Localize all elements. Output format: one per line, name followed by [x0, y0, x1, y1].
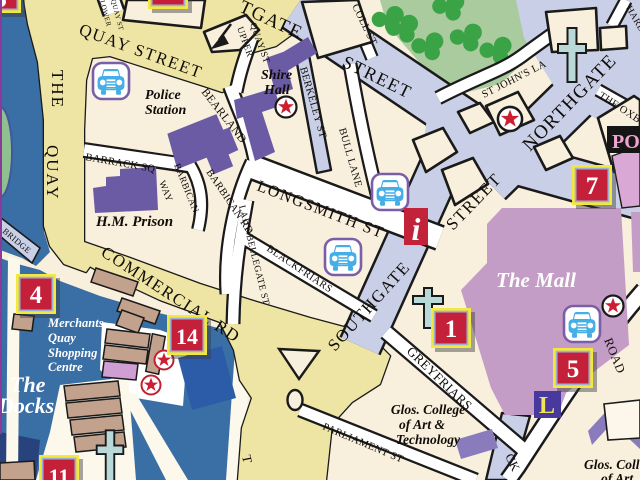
svg-text:7: 7 — [586, 173, 599, 200]
svg-text:Shire: Shire — [261, 68, 292, 83]
svg-text:1: 1 — [445, 316, 458, 343]
svg-text:THE: THE — [48, 70, 67, 109]
svg-text:The Mall: The Mall — [496, 268, 576, 292]
svg-text:L: L — [539, 393, 555, 419]
svg-text:Shopping: Shopping — [48, 346, 97, 360]
svg-text:Station: Station — [145, 103, 186, 118]
svg-text:Merchants: Merchants — [47, 316, 104, 330]
svg-text:of Art: of Art — [601, 471, 634, 480]
svg-text:4: 4 — [30, 282, 43, 309]
svg-text:14: 14 — [176, 324, 198, 349]
svg-text:of Art &: of Art & — [399, 417, 446, 432]
svg-text:Police: Police — [145, 88, 181, 103]
svg-text:H.M. Prison: H.M. Prison — [95, 214, 173, 230]
svg-text:Glos. Coll: Glos. Coll — [584, 457, 640, 472]
svg-text:Quay: Quay — [48, 331, 76, 345]
svg-text:11: 11 — [49, 464, 70, 480]
svg-text:5: 5 — [567, 356, 580, 383]
svg-text:Centre: Centre — [48, 360, 83, 374]
svg-text:Docks: Docks — [0, 393, 54, 418]
svg-text:Glos. College: Glos. College — [391, 402, 465, 417]
svg-text:Technology: Technology — [396, 432, 461, 447]
svg-text:QUAY: QUAY — [43, 145, 62, 201]
svg-text:i: i — [412, 211, 421, 247]
svg-text:PO: PO — [612, 131, 640, 153]
